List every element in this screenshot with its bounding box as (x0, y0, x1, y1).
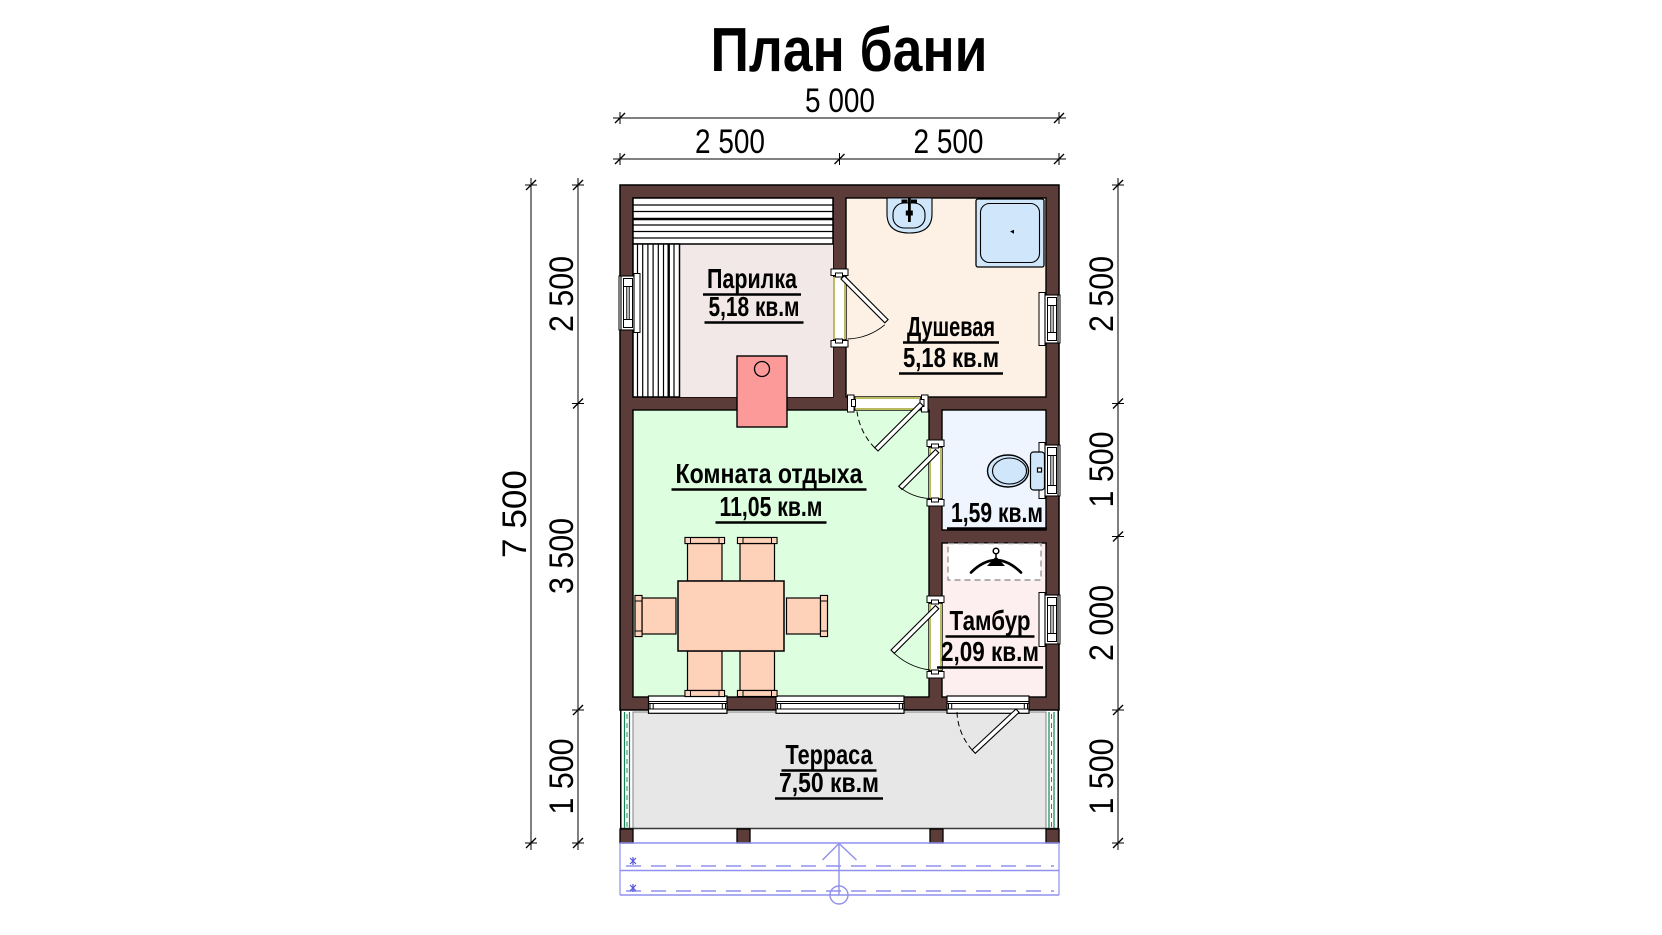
svg-text:План бани: План бани (711, 16, 988, 85)
svg-text:Терраса: Терраса (786, 739, 873, 770)
svg-text:2 500: 2 500 (1083, 256, 1121, 332)
svg-text:2 000: 2 000 (1083, 585, 1121, 661)
svg-text:Душевая: Душевая (907, 311, 995, 342)
svg-text:7 500: 7 500 (496, 470, 534, 558)
svg-text:Тамбур: Тамбур (950, 605, 1031, 636)
svg-text:1 500: 1 500 (543, 739, 581, 815)
svg-text:1 500: 1 500 (1083, 739, 1121, 815)
svg-text:2 500: 2 500 (914, 123, 984, 161)
svg-text:2 500: 2 500 (543, 256, 581, 332)
svg-text:2 500: 2 500 (695, 123, 765, 161)
svg-text:Комната отдыха: Комната отдыха (676, 458, 863, 489)
svg-text:11,05 кв.м: 11,05 кв.м (720, 491, 823, 522)
svg-text:5 000: 5 000 (805, 82, 875, 120)
svg-text:3 500: 3 500 (543, 518, 581, 594)
svg-text:7,50 кв.м: 7,50 кв.м (779, 767, 879, 798)
svg-text:5,18 кв.м: 5,18 кв.м (903, 342, 999, 373)
svg-text:2,09 кв.м: 2,09 кв.м (941, 636, 1039, 667)
svg-text:5,18 кв.м: 5,18 кв.м (709, 291, 800, 322)
svg-text:Парилка: Парилка (707, 263, 797, 294)
svg-text:1 500: 1 500 (1083, 432, 1121, 508)
svg-text:1,59 кв.м: 1,59 кв.м (951, 497, 1043, 528)
